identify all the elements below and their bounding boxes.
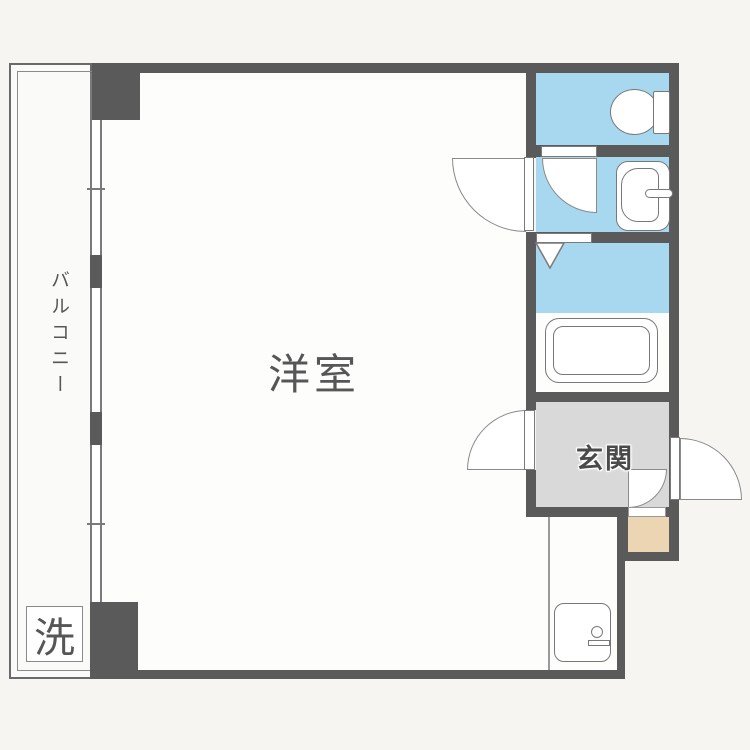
window-sash-tick bbox=[87, 188, 105, 190]
door-swing-front bbox=[680, 438, 742, 500]
balcony-label: バルコニー bbox=[45, 270, 72, 400]
washing-machine-box: 洗 bbox=[26, 606, 83, 662]
wall-corner-bottom-left bbox=[90, 602, 138, 679]
kitchen-faucet-icon bbox=[591, 626, 603, 638]
toilet-tank-icon bbox=[653, 91, 670, 134]
wall-entrance-bottom-right bbox=[666, 507, 679, 517]
window-sash-tick bbox=[87, 523, 105, 525]
door-leaf-washroom-entry bbox=[524, 157, 534, 231]
wall-corner-top-left bbox=[92, 63, 140, 120]
wall-below-storage bbox=[617, 552, 679, 561]
wall-mid-vertical bbox=[526, 73, 536, 158]
toilet-bowl-icon bbox=[610, 89, 659, 135]
floorplan-canvas: 洗 洋室 バルコニー 玄関 bbox=[0, 0, 750, 750]
wall-left-segment bbox=[90, 412, 102, 445]
door-leaf-entrance-hall bbox=[524, 410, 535, 470]
wall-kitchen-right bbox=[617, 561, 625, 679]
door-triangle-bathroom bbox=[534, 241, 568, 271]
washing-machine-label: 洗 bbox=[34, 604, 75, 664]
washbasin-faucet-icon bbox=[645, 189, 673, 198]
kitchen-faucet-base-icon bbox=[588, 640, 610, 646]
door-opening-storage bbox=[628, 507, 666, 517]
wall-bottom bbox=[92, 670, 625, 679]
door-leaf-toilet bbox=[541, 146, 597, 157]
entrance-label: 玄関 bbox=[576, 437, 634, 476]
kitchen-counter-line bbox=[548, 517, 550, 670]
wall-left-segment bbox=[90, 255, 102, 288]
wall-top bbox=[92, 63, 679, 73]
wall-entrance-bottom bbox=[526, 507, 630, 517]
main-room-label: 洋室 bbox=[268, 341, 360, 402]
shoe-storage-floor bbox=[628, 517, 669, 552]
wall-bath-entrance bbox=[526, 392, 679, 402]
bathtub-inner-icon bbox=[553, 326, 650, 375]
door-leaf-front bbox=[670, 437, 680, 500]
balcony-window bbox=[90, 73, 102, 670]
